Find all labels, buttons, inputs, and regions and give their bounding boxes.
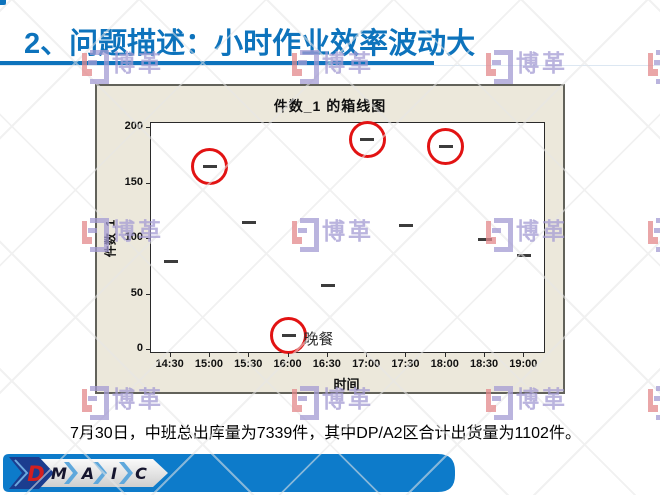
boge-watermark: 博革: [648, 218, 660, 244]
y-tick-mark: [146, 349, 150, 350]
y-tick-label: 200: [109, 120, 143, 132]
x-tick-mark: [170, 353, 171, 357]
x-tick-mark: [445, 353, 446, 357]
y-tick-label: 50: [109, 287, 143, 299]
x-tick-label: 18:00: [425, 358, 465, 370]
data-point-dash: [478, 238, 492, 241]
dmaic-letter-d: D: [27, 462, 44, 486]
y-tick-mark: [146, 183, 150, 184]
data-point-dash: [517, 254, 531, 257]
x-tick-label: 18:30: [464, 358, 504, 370]
x-tick-mark: [523, 353, 524, 357]
x-tick-mark: [288, 353, 289, 357]
chart-title: 件数_1 的箱线图: [97, 96, 563, 116]
y-tick-label: 150: [109, 176, 143, 188]
data-point-dash: [164, 260, 178, 263]
x-tick-mark: [209, 353, 210, 357]
data-point-dash: [242, 221, 256, 224]
dmaic-bar: D M A I C: [3, 454, 455, 492]
x-tick-label: 14:30: [150, 358, 190, 370]
x-tick-mark: [366, 353, 367, 357]
boge-logo-icon: [486, 50, 510, 76]
x-tick-label: 15:30: [228, 358, 268, 370]
dmaic-letter-i: I: [111, 464, 117, 483]
data-point-dash: [399, 224, 413, 227]
x-tick-label: 16:30: [307, 358, 347, 370]
x-tick-label: 17:30: [385, 358, 425, 370]
x-tick-label: 17:00: [346, 358, 386, 370]
y-tick-label: 100: [109, 231, 143, 243]
x-tick-label: 19:00: [503, 358, 543, 370]
boxplot-chart-panel: 件数_1 的箱线图 件数_1 晚餐 时间 05010015020014:3015…: [95, 84, 565, 394]
x-tick-label: 16:00: [268, 358, 308, 370]
boge-watermark: 博革: [486, 50, 568, 76]
x-tick-mark: [248, 353, 249, 357]
watermark-text: 博革: [516, 50, 568, 76]
boge-watermark: 博革: [648, 386, 660, 412]
title-underline: [0, 61, 434, 65]
outlier-highlight-circle: [270, 317, 307, 354]
y-tick-mark: [146, 127, 150, 128]
x-axis-title: 时间: [150, 374, 543, 393]
slide-title: 2、问题描述：小时作业效率波动大: [24, 20, 475, 62]
x-tick-mark: [484, 353, 485, 357]
outlier-highlight-circle: [427, 128, 464, 165]
x-tick-mark: [405, 353, 406, 357]
boge-logo-icon: [648, 218, 660, 244]
boge-logo-icon: [648, 50, 660, 76]
dmaic-letter-a: A: [80, 464, 94, 483]
footer-note: 7月30日，中班总出库量为7339件，其中DP/A2区合计出货量为1102件。: [70, 419, 630, 443]
plot-area: 晚餐: [150, 122, 545, 353]
boge-logo-icon: [648, 386, 660, 412]
outlier-highlight-circle: [191, 148, 228, 185]
plot-annotation: 晚餐: [304, 328, 334, 349]
title-underline-thin: [0, 65, 660, 66]
dmaic-letter-c: C: [135, 464, 147, 483]
y-tick-mark: [146, 238, 150, 239]
dmaic-letter-m: M: [51, 464, 67, 483]
boge-watermark: 博革: [648, 50, 660, 76]
x-tick-mark: [327, 353, 328, 357]
corner-accent: [0, 0, 6, 5]
data-point-dash: [321, 284, 335, 287]
outlier-highlight-circle: [349, 121, 386, 158]
y-tick-label: 0: [109, 342, 143, 354]
x-tick-label: 15:00: [189, 358, 229, 370]
y-tick-mark: [146, 294, 150, 295]
